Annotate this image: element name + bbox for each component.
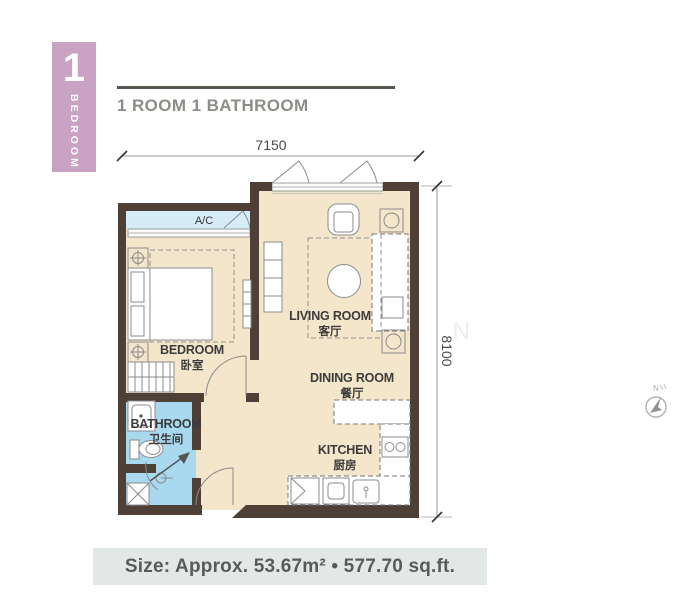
- svg-text:餐厅: 餐厅: [340, 386, 364, 400]
- page-title: 1 ROOM 1 BATHROOM: [117, 96, 309, 116]
- sofa: [372, 234, 408, 331]
- dimension-right-value: 8100: [439, 335, 455, 366]
- dimension-right: 8100: [421, 181, 455, 522]
- svg-text:卧室: 卧室: [181, 358, 204, 372]
- kitchen-sink: [353, 480, 379, 503]
- svg-text:KITCHEN: KITCHEN: [318, 443, 372, 457]
- badge-label: BEDROOM: [68, 94, 80, 170]
- bed: [128, 268, 212, 340]
- ac-label: A/C: [195, 215, 213, 227]
- svg-text:卫生间: 卫生间: [149, 432, 184, 446]
- dimension-top: 7150: [117, 137, 424, 161]
- size-summary: Size: Approx. 53.67m² • 577.70 sq.ft.: [93, 548, 487, 585]
- svg-text:厨房: 厨房: [334, 458, 357, 472]
- svg-text:BATHROOM: BATHROOM: [130, 417, 201, 431]
- dining-counter: [334, 400, 410, 424]
- svg-text:LIVING ROOM: LIVING ROOM: [289, 309, 371, 323]
- svg-text:客厅: 客厅: [318, 324, 342, 338]
- unit-type-badge: 1 BEDROOM: [52, 42, 96, 172]
- window-swing-right: [340, 161, 377, 183]
- tv-console: [264, 242, 282, 312]
- round-table: [328, 265, 361, 298]
- armchair: [328, 204, 359, 235]
- dimension-top-value: 7150: [255, 137, 286, 153]
- compass-icon: N: [638, 380, 674, 424]
- svg-text:DINING ROOM: DINING ROOM: [310, 371, 394, 385]
- bedroom-shelf: [243, 280, 251, 328]
- floor-plan: 7150 8100: [100, 130, 460, 545]
- badge-number: 1: [63, 48, 85, 88]
- svg-text:BEDROOM: BEDROOM: [160, 343, 224, 357]
- kitchen-counter-right: [380, 424, 410, 477]
- ac-window: [128, 229, 250, 237]
- ac-ledge-floor: [126, 211, 250, 229]
- window-swing-left: [272, 161, 309, 183]
- compass-north-label: N: [653, 384, 659, 393]
- wardrobe: [128, 362, 174, 392]
- title-rule: [117, 86, 395, 89]
